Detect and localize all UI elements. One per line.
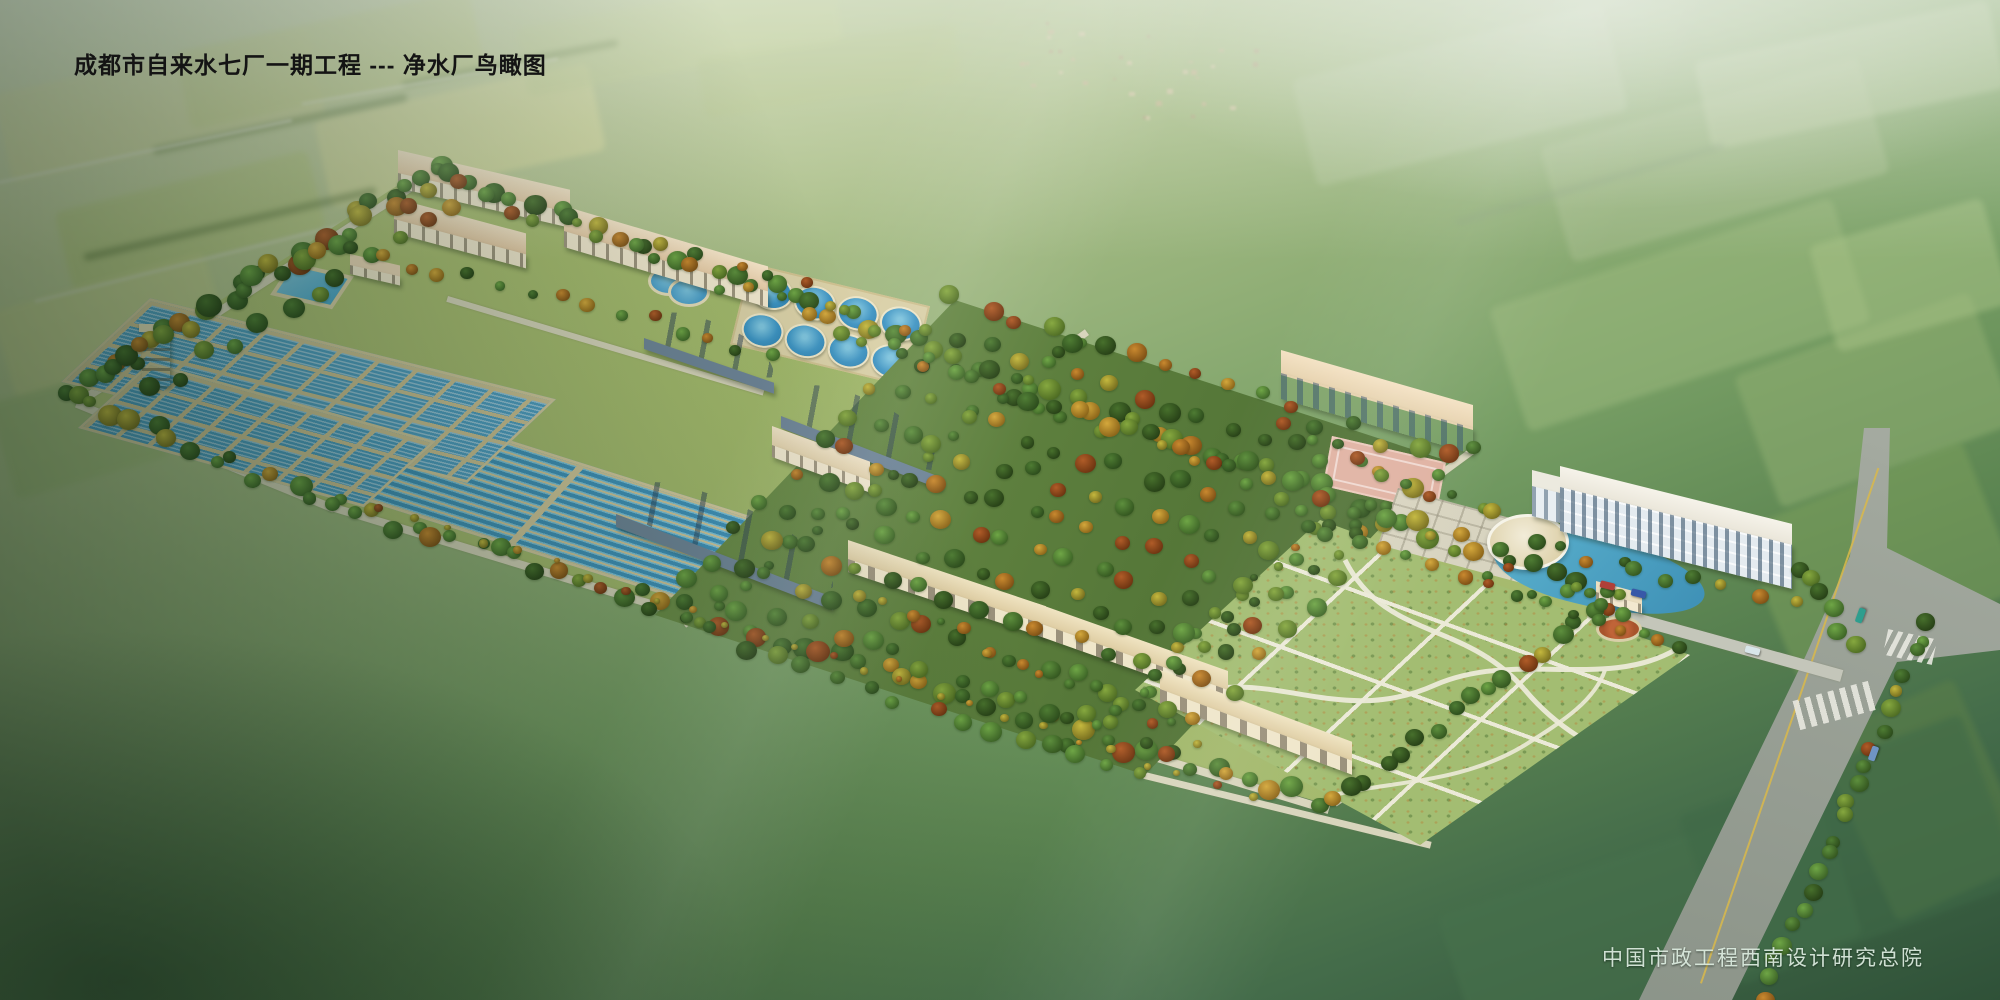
- aerial-rendering: 成都市自来水七厂一期工程 --- 净水厂鸟瞰图 中国市政工程西南设计研究总院: [0, 0, 2000, 1000]
- car: [1630, 588, 1646, 598]
- attribution: 中国市政工程西南设计研究总院: [1602, 942, 1924, 972]
- car: [1868, 745, 1880, 761]
- car: [1599, 580, 1615, 590]
- page-title: 成都市自来水七厂一期工程 --- 净水厂鸟瞰图: [74, 46, 547, 80]
- car: [1744, 645, 1760, 656]
- car: [1855, 607, 1867, 623]
- vehicles: [0, 0, 2000, 1000]
